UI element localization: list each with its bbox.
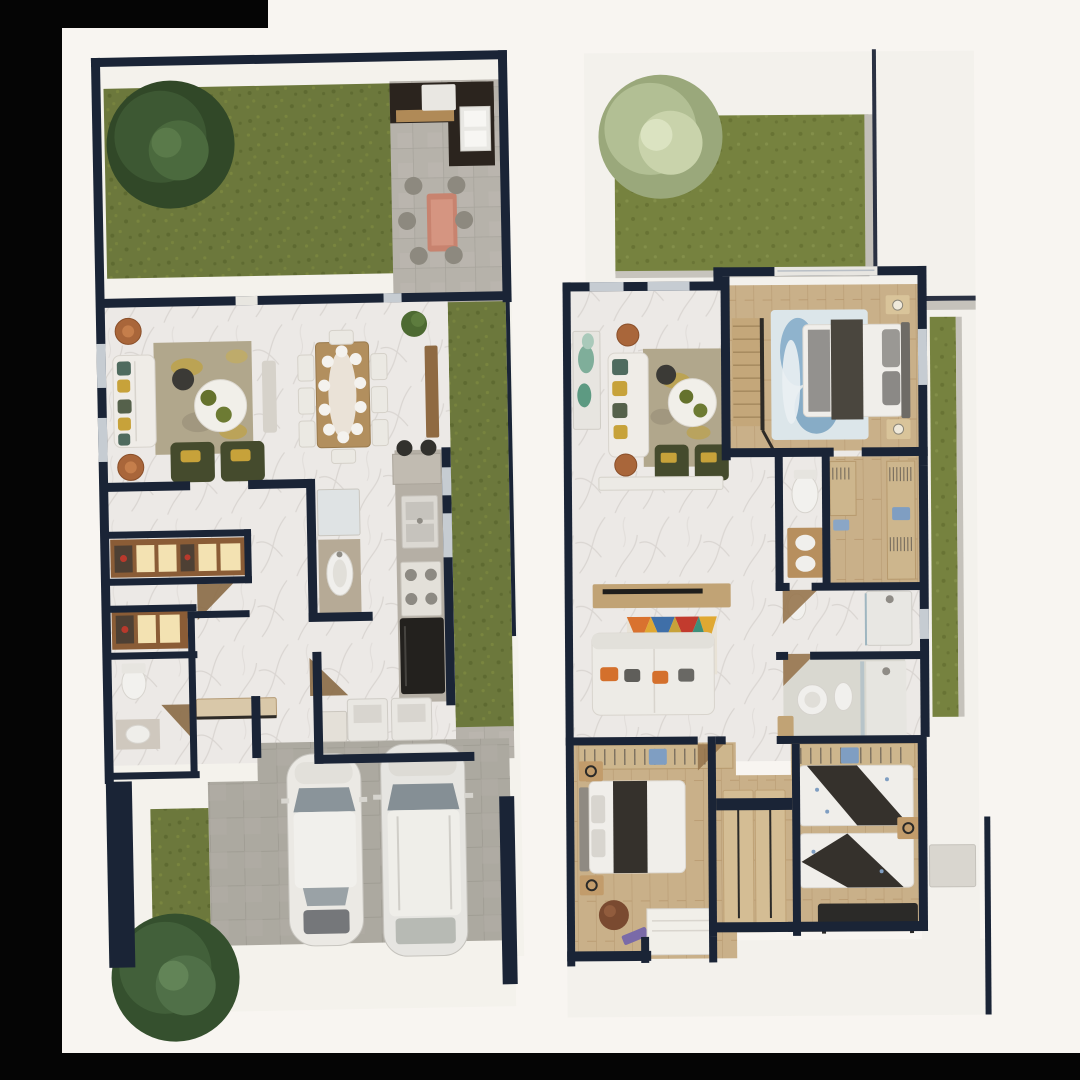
step-edge-line — [925, 296, 976, 301]
sofa-pillow — [612, 359, 628, 375]
powder-mirror — [317, 489, 360, 536]
shower-head — [886, 595, 894, 603]
nightstand — [897, 817, 919, 839]
dining-chair — [371, 386, 387, 412]
suv-windshield — [387, 783, 459, 810]
wall — [777, 735, 926, 744]
suv-mirror — [373, 795, 382, 800]
window — [920, 609, 929, 639]
bath-vanity-basin — [126, 725, 150, 743]
hanging-clothes — [890, 467, 911, 481]
ground-floor-plan — [91, 50, 526, 1043]
shower-glass-panel — [860, 661, 865, 735]
kitchen-sink-basin — [406, 524, 434, 543]
wall — [562, 281, 722, 291]
wall — [566, 737, 698, 746]
wall — [720, 276, 730, 460]
wall — [810, 651, 925, 660]
tv — [603, 589, 703, 595]
nightstand — [580, 875, 604, 895]
wall — [788, 921, 928, 932]
sedan-rear-glass — [303, 887, 349, 906]
wall — [188, 611, 196, 657]
sofa-pillow — [624, 669, 640, 682]
closet-lit-box — [220, 543, 241, 570]
sofa-pillow — [117, 361, 131, 375]
wardrobe-handle — [738, 800, 739, 918]
wall — [862, 447, 928, 456]
window — [383, 293, 401, 302]
step-edge-gray — [925, 301, 976, 310]
closet-lit-box — [136, 545, 155, 572]
copper-side-table — [615, 454, 637, 476]
dining-chair — [329, 330, 353, 344]
living-bench — [262, 361, 277, 433]
moss-bowl — [679, 390, 693, 404]
pantry-lit-box — [160, 614, 181, 642]
wall — [776, 652, 788, 660]
sedan-mirror — [281, 798, 289, 803]
window — [589, 282, 623, 291]
washer-lid — [353, 705, 381, 724]
wall — [812, 582, 925, 591]
sofa-pillow — [117, 399, 131, 413]
armchair-pillow — [701, 452, 717, 462]
toilet-tank — [794, 470, 817, 479]
door-threshold — [236, 296, 258, 305]
hanging-clothes — [890, 537, 911, 551]
moss-bowl — [693, 403, 707, 417]
master-pillow — [882, 371, 900, 405]
dark-side-table — [656, 365, 676, 385]
bbq-wood-bar — [396, 109, 454, 122]
window — [647, 282, 689, 291]
floor-plan-screenshot — [0, 0, 1080, 1080]
bed2-throw — [613, 781, 648, 873]
wall — [714, 922, 796, 933]
window — [443, 513, 453, 557]
balcony-niche — [647, 908, 715, 954]
closet-lit-box — [158, 545, 177, 572]
outdoor-sink-basin — [464, 111, 486, 127]
sofa-pillow — [678, 669, 694, 682]
stair-nosing — [197, 717, 277, 719]
dining-chair — [298, 388, 314, 414]
pedestal-sink-bowl — [804, 692, 820, 708]
window-mullion — [777, 270, 874, 271]
suv-mirror — [464, 793, 473, 798]
stair-rail — [760, 318, 765, 430]
window — [96, 344, 106, 388]
wall — [775, 455, 784, 591]
wall — [918, 737, 928, 931]
toilet-tank — [122, 663, 146, 673]
wall — [251, 696, 261, 758]
wall — [244, 529, 252, 583]
bbq-grill — [421, 84, 455, 111]
wall-stub — [641, 937, 649, 963]
wardrobe-handle — [770, 800, 771, 918]
sofa-pillow — [117, 379, 130, 392]
wall-stub — [709, 936, 717, 962]
nightstand — [579, 761, 603, 781]
pantry-lit-box — [138, 615, 157, 643]
duvet-dot — [811, 850, 815, 854]
bed2-pillow — [591, 829, 605, 857]
sofa-pillow — [118, 433, 130, 445]
patio-lounge-cushion — [431, 199, 454, 245]
closet-header — [716, 798, 792, 811]
duvet-dot — [885, 777, 889, 781]
master-bed-drape — [808, 330, 831, 412]
exterior-steps — [929, 845, 975, 887]
dining-chair — [298, 355, 314, 381]
kitchen-sink-basin — [405, 502, 433, 521]
duvet-dot — [825, 810, 829, 814]
outdoor-sink-basin — [464, 131, 486, 147]
wall — [919, 466, 930, 737]
storage-box — [892, 507, 910, 520]
sofa-pillow — [612, 381, 627, 396]
dining-console — [424, 345, 439, 437]
round-coffee-table — [194, 379, 247, 432]
sectional-back — [592, 632, 714, 649]
table-lamp — [893, 300, 903, 310]
dining-chair — [372, 419, 388, 445]
duvet-dot — [880, 869, 884, 873]
table-lamp — [893, 424, 903, 434]
sedan-roof — [293, 811, 356, 888]
sedan-hood — [294, 761, 352, 784]
kitchen-island — [393, 453, 442, 484]
dining-chair — [331, 449, 355, 463]
yard-fence-left — [106, 781, 136, 967]
shower-head — [882, 667, 890, 675]
upper-floor-plan — [561, 49, 992, 1018]
pouf-highlight — [604, 905, 616, 917]
dining-chair — [299, 421, 315, 447]
sofa-pillow — [600, 667, 618, 681]
wardrobe — [830, 461, 856, 515]
wall — [716, 736, 726, 744]
bed2-pillow — [591, 795, 605, 823]
frame-bar-top-left — [0, 0, 268, 28]
side-yard-grass — [448, 301, 514, 732]
storage-box — [649, 749, 667, 765]
sedan-mirror — [359, 797, 367, 802]
family-console — [599, 476, 723, 490]
plans-layer — [91, 49, 992, 1043]
master-pillow — [882, 329, 900, 367]
storage-box — [833, 519, 849, 530]
toilet — [834, 682, 852, 710]
wall — [822, 455, 831, 585]
wall — [248, 479, 312, 489]
storage-box — [841, 747, 859, 763]
wall — [188, 610, 250, 618]
window — [98, 418, 108, 462]
staircase — [732, 318, 763, 426]
armchair-pillow — [661, 453, 677, 463]
frame-bar-left — [0, 0, 62, 1053]
wall — [309, 612, 373, 622]
floor-plans-svg — [0, 0, 1080, 1080]
frame-bar-bottom — [0, 1053, 1080, 1080]
wall — [102, 481, 190, 492]
window — [442, 467, 452, 495]
sofa-pillow — [612, 403, 627, 418]
window — [918, 329, 927, 385]
master-headboard — [901, 322, 911, 418]
round-coffee-table — [668, 378, 716, 426]
wall — [567, 951, 651, 962]
sofa-pillow — [652, 671, 668, 684]
armchair-pillow — [230, 449, 250, 461]
master-bed-throw — [831, 319, 864, 419]
sofa-pillow — [613, 425, 627, 439]
vanity-basin — [795, 556, 815, 572]
sedan-trunk — [303, 909, 349, 934]
sedan-windshield — [293, 787, 355, 812]
stove — [401, 561, 442, 616]
suv-rear — [395, 917, 455, 944]
dryer-lid — [397, 704, 425, 723]
wall — [776, 583, 790, 591]
wall — [792, 744, 801, 936]
tv-console — [593, 583, 731, 608]
closet-lit-box — [198, 544, 217, 571]
armchair-pillow — [180, 450, 200, 462]
toilet — [792, 475, 818, 513]
dining-chair — [371, 353, 387, 379]
wall — [708, 736, 717, 936]
side-yard-grass — [930, 317, 959, 717]
duvet-dot — [815, 788, 819, 792]
wall-art-paint — [582, 333, 594, 349]
pale-tree-layer — [640, 119, 672, 151]
vanity-basin — [795, 535, 815, 551]
sofa-pillow — [118, 417, 131, 430]
refrigerator-handle — [405, 626, 406, 686]
copper-side-table — [617, 324, 639, 346]
bed2-headboard — [579, 787, 590, 871]
